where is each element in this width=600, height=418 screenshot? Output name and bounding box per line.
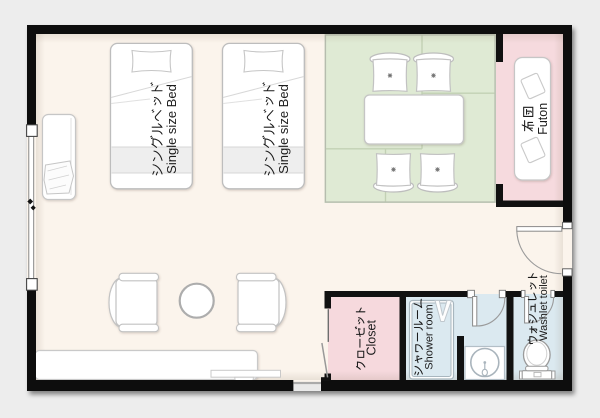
svg-text:Shower room: Shower room — [424, 304, 436, 369]
svg-text:Washlet toilet: Washlet toilet — [538, 275, 550, 341]
svg-text:Single size Bed: Single size Bed — [164, 84, 179, 174]
svg-text:Futon: Futon — [536, 103, 550, 135]
svg-text:Closet: Closet — [365, 320, 379, 356]
svg-text:Single size Bed: Single size Bed — [276, 84, 291, 174]
